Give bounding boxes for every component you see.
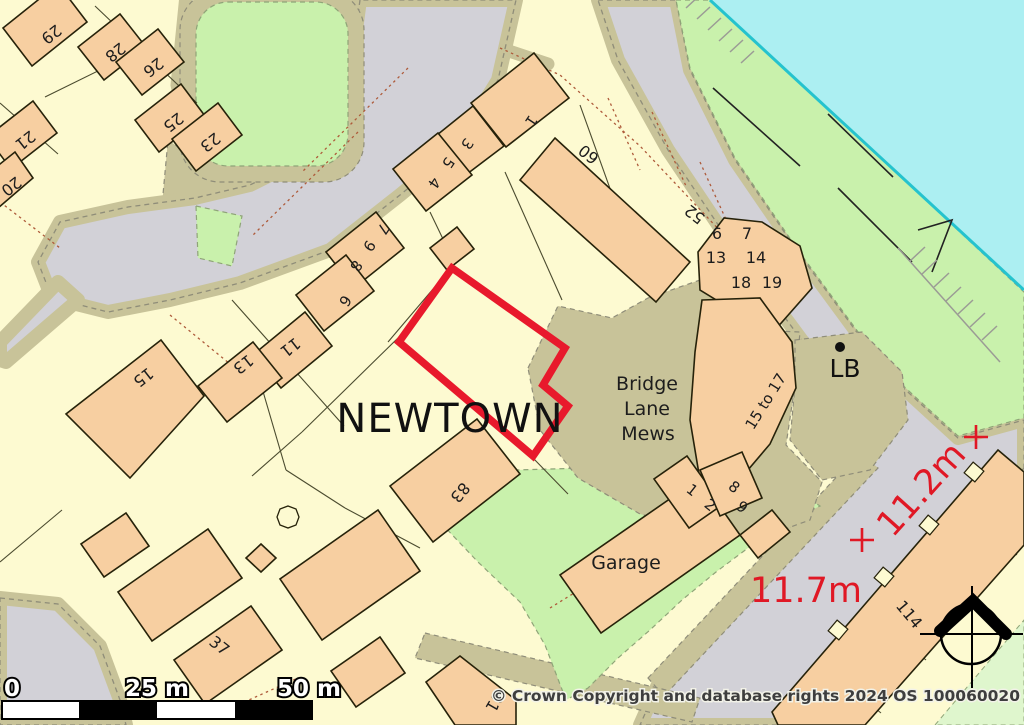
mews-label-line1: Bridge xyxy=(616,373,678,395)
os-map: NEWTOWN 29 28 26 25 23 21 20 15 13 11 1 … xyxy=(0,0,1024,725)
flat-number: 6 xyxy=(712,224,722,243)
flat-number: 13 xyxy=(706,248,726,267)
letterbox-dot xyxy=(835,342,845,352)
garage-label: Garage xyxy=(591,552,661,574)
flat-number: 18 xyxy=(731,273,751,292)
flat-number: 19 xyxy=(762,273,782,292)
place-name: NEWTOWN xyxy=(336,396,563,442)
scale-label-0: 0 xyxy=(4,676,20,702)
mews-label-line2: Lane xyxy=(624,398,670,420)
scale-label-25: 25 m xyxy=(125,676,189,702)
flat-number: 14 xyxy=(746,248,766,267)
letterbox-label: LB xyxy=(829,354,860,383)
copyright-text: © Crown Copyright and database rights 20… xyxy=(491,687,1020,705)
flat-number: 7 xyxy=(742,224,752,243)
map-canvas[interactable]: NEWTOWN 29 28 26 25 23 21 20 15 13 11 1 … xyxy=(0,0,1024,725)
measurement-depth: 11.7m xyxy=(750,571,862,611)
scale-label-50: 50 m xyxy=(277,676,341,702)
scale-bar-segment xyxy=(235,701,312,719)
scale-bar-segment xyxy=(79,701,157,719)
kiosk xyxy=(277,506,299,528)
mews-label-line3: Mews xyxy=(621,423,675,445)
